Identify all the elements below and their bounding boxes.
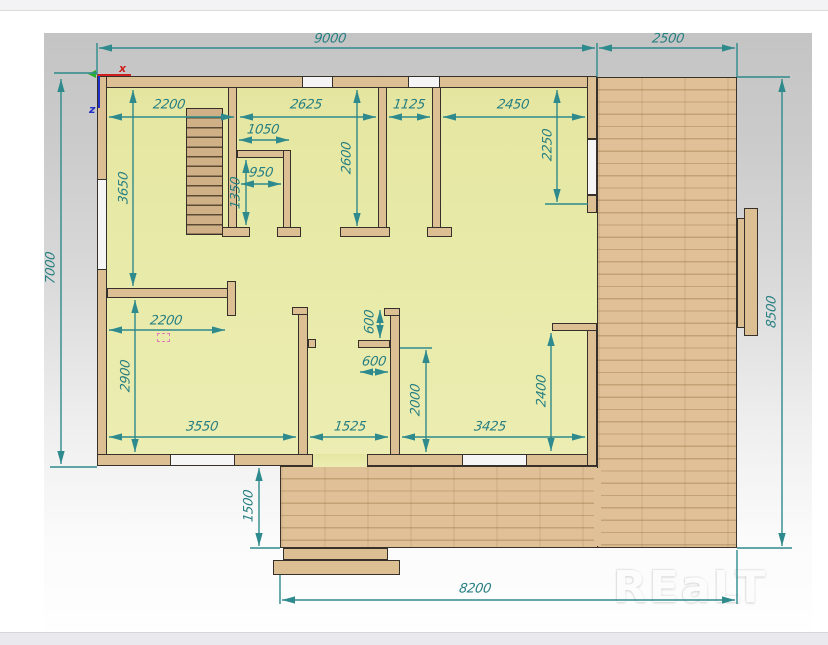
closet-wall-vertical [283,150,291,228]
exterior-wall-right-upper [587,76,597,139]
dim-label-600-horiz: 600 [361,355,387,370]
interior-wall-stair-foot [222,227,250,237]
dim-label-600-vert: 600 [363,309,378,335]
dim-label-2900: 2900 [119,359,134,393]
top-window-strip [0,0,828,11]
dim-label-2400: 2400 [535,374,550,408]
deck-step-upper [283,548,388,560]
dim-label-2625: 2625 [289,98,323,113]
dim-label-2200-mid: 2200 [149,314,183,329]
deck-side-step-outer [744,208,758,336]
window-bottom-1 [170,454,235,466]
deck-right [597,77,737,548]
deck-bottom [280,466,598,548]
exterior-wall-right-lower [587,323,597,466]
interior-wall-a-foot [340,227,390,237]
screenshot-page: REaLT x z [0,0,828,645]
deck-step-lower [273,560,400,575]
staircase [186,108,223,235]
interior-wall-b-foot [427,227,452,237]
dim-label-3550: 3550 [185,420,219,435]
interior-wall-a [378,87,387,228]
ucs-z-axis [98,76,100,108]
wc-wall-right-cap [384,308,400,316]
dim-label-2600: 2600 [340,141,355,175]
interior-wall-mid-cap [227,281,236,316]
dim-label-8200: 8200 [458,582,492,597]
dim-label-2200-top: 2200 [152,98,186,113]
window-left [97,179,107,270]
dim-label-1500: 1500 [242,489,257,523]
watermark-realt: REaLT [613,562,813,613]
closet-wall-foot [277,227,301,237]
exterior-wall-top [97,76,597,88]
wc-wall-right [390,308,400,455]
dim-label-3425: 3425 [473,420,507,435]
dim-label-1350: 1350 [229,176,244,210]
wc-wall-left-cap [292,307,308,315]
dim-label-7000: 7000 [44,251,59,285]
bottom-window-strip [0,632,828,645]
door-opening-bottom [313,454,367,467]
window-top-1 [302,76,333,88]
dim-label-1050: 1050 [246,123,280,138]
dim-label-9000: 9000 [313,32,347,47]
dim-label-1125: 1125 [392,98,426,113]
dim-label-3650: 3650 [117,171,132,205]
deck-seam-patch [594,468,601,546]
exterior-wall-left [97,76,107,466]
dim-label-2500: 2500 [651,32,685,47]
interior-wall-mid-horizontal [107,288,228,298]
dim-label-8500: 8500 [765,295,780,329]
wc-wall-left [298,307,308,455]
wc-shelf-wall [358,340,390,348]
window-bottom-2 [462,454,527,466]
wc-wall-left-knob [308,339,316,348]
interior-wall-b [432,87,441,228]
ucs-y-axis-icon [88,70,96,78]
dim-label-2000: 2000 [409,383,424,417]
ucs-x-label: x [119,62,126,75]
interior-floor [104,84,597,458]
dim-label-2450: 2450 [496,98,530,113]
window-right [587,139,597,195]
dim-label-1525: 1525 [333,420,367,435]
dim-label-2250: 2250 [541,128,556,162]
exterior-wall-right-mid [587,195,597,213]
ucs-z-label: z [89,103,95,116]
dim-label-950: 950 [248,166,274,181]
bottom-right-room-cap [552,323,597,331]
door-swing-marker [157,333,170,342]
